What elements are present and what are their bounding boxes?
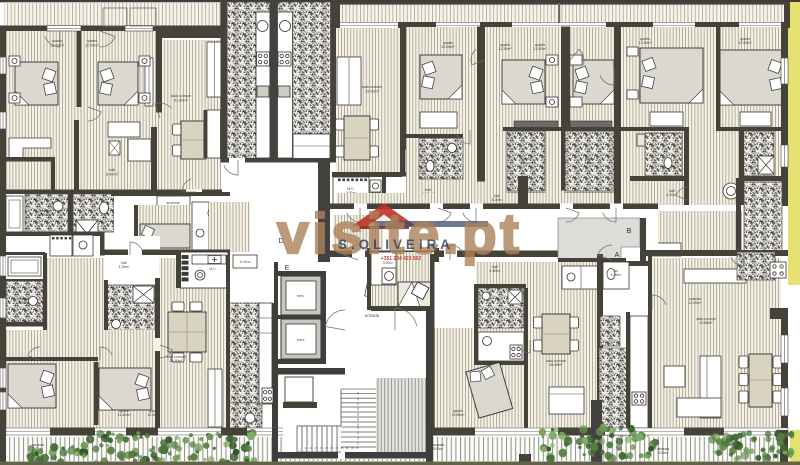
svg-text:elev.: elev.: [297, 337, 305, 342]
svg-text:M.C.: M.C.: [209, 267, 216, 271]
svg-text:+351 234 423 562: +351 234 423 562: [381, 256, 422, 262]
svg-text:entrada: entrada: [365, 313, 380, 318]
svg-text:19.00m²: 19.00m²: [365, 89, 380, 93]
svg-text:sala comum: sala comum: [362, 85, 382, 89]
svg-text:sala comum: sala comum: [171, 94, 191, 98]
svg-text:12.00m²: 12.00m²: [738, 41, 752, 45]
svg-text:6.90m²: 6.90m²: [106, 172, 119, 176]
svg-text:4.50m²: 4.50m²: [490, 269, 502, 273]
svg-text:8.00m²: 8.00m²: [658, 451, 669, 455]
svg-text:elev.: elev.: [297, 293, 305, 298]
svg-text:8.00m²: 8.00m²: [433, 447, 444, 451]
svg-text:21.80m²: 21.80m²: [699, 321, 713, 325]
svg-text:26.90m²: 26.90m²: [549, 363, 563, 367]
svg-text:4.50m²: 4.50m²: [585, 161, 597, 165]
svg-text:11.00m²: 11.00m²: [534, 47, 548, 51]
svg-text:A: A: [614, 250, 619, 259]
svg-text:11.60m²: 11.60m²: [239, 260, 250, 264]
svg-text:4.20m²: 4.20m²: [611, 273, 622, 277]
svg-text:E: E: [285, 265, 290, 272]
svg-text:quarto: quarto: [87, 39, 98, 43]
svg-text:4.20m²: 4.20m²: [119, 265, 131, 269]
svg-text:21.50m²: 21.50m²: [174, 98, 189, 102]
svg-text:5.00m²: 5.00m²: [39, 213, 51, 217]
svg-text:12.00m²: 12.00m²: [688, 301, 702, 305]
svg-text:quarto: quarto: [52, 39, 63, 43]
svg-text:4.50m²: 4.50m²: [19, 301, 31, 305]
svg-text:12.30m²: 12.30m²: [638, 41, 652, 45]
svg-text:B: B: [626, 226, 631, 235]
svg-text:11.40m²: 11.40m²: [118, 413, 131, 417]
svg-text:12.00m²: 12.00m²: [85, 43, 100, 47]
svg-text:12.80m²: 12.80m²: [452, 413, 466, 417]
svg-text:4.20m²: 4.20m²: [521, 161, 533, 165]
svg-text:hall: hall: [109, 168, 115, 172]
svg-text:10.00m²: 10.00m²: [441, 45, 455, 49]
svg-text:25.50m²: 25.50m²: [169, 359, 183, 363]
svg-text:11.30m²: 11.30m²: [499, 47, 513, 51]
